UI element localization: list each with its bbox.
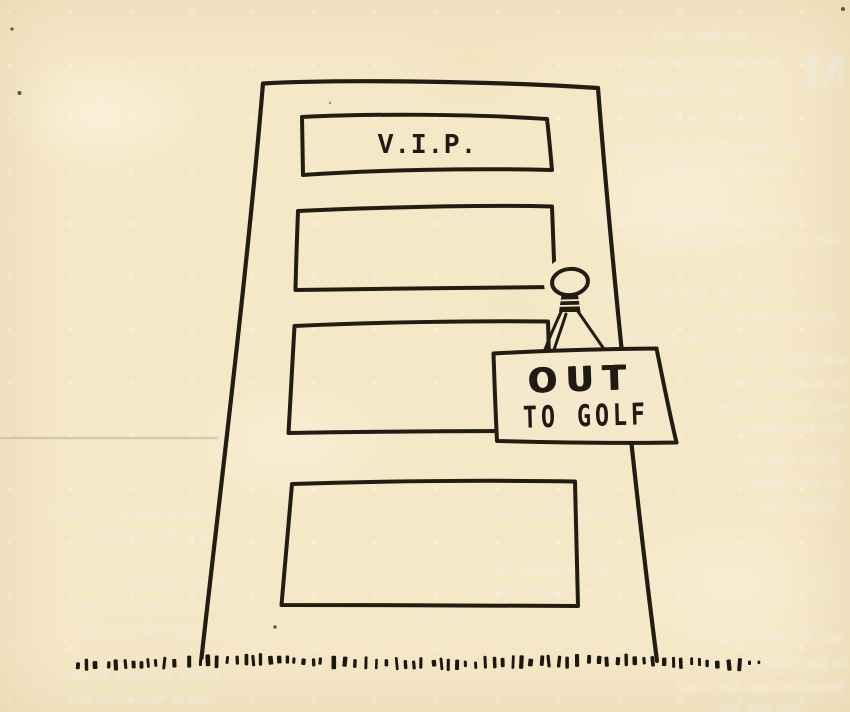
sign-string-right — [577, 310, 604, 349]
sign-board — [494, 349, 677, 443]
door-knob — [551, 267, 590, 297]
door-panel-4 — [282, 481, 579, 606]
vip-plate-frame — [302, 115, 552, 175]
cartoon-drawing — [0, 0, 850, 712]
door-panel-2 — [296, 206, 556, 290]
paper-specks — [10, 7, 845, 629]
sign-string-middle — [553, 314, 566, 353]
scanned-cartoon-page: M um dem nachgeneinen versprinstdep Vere… — [0, 0, 850, 712]
